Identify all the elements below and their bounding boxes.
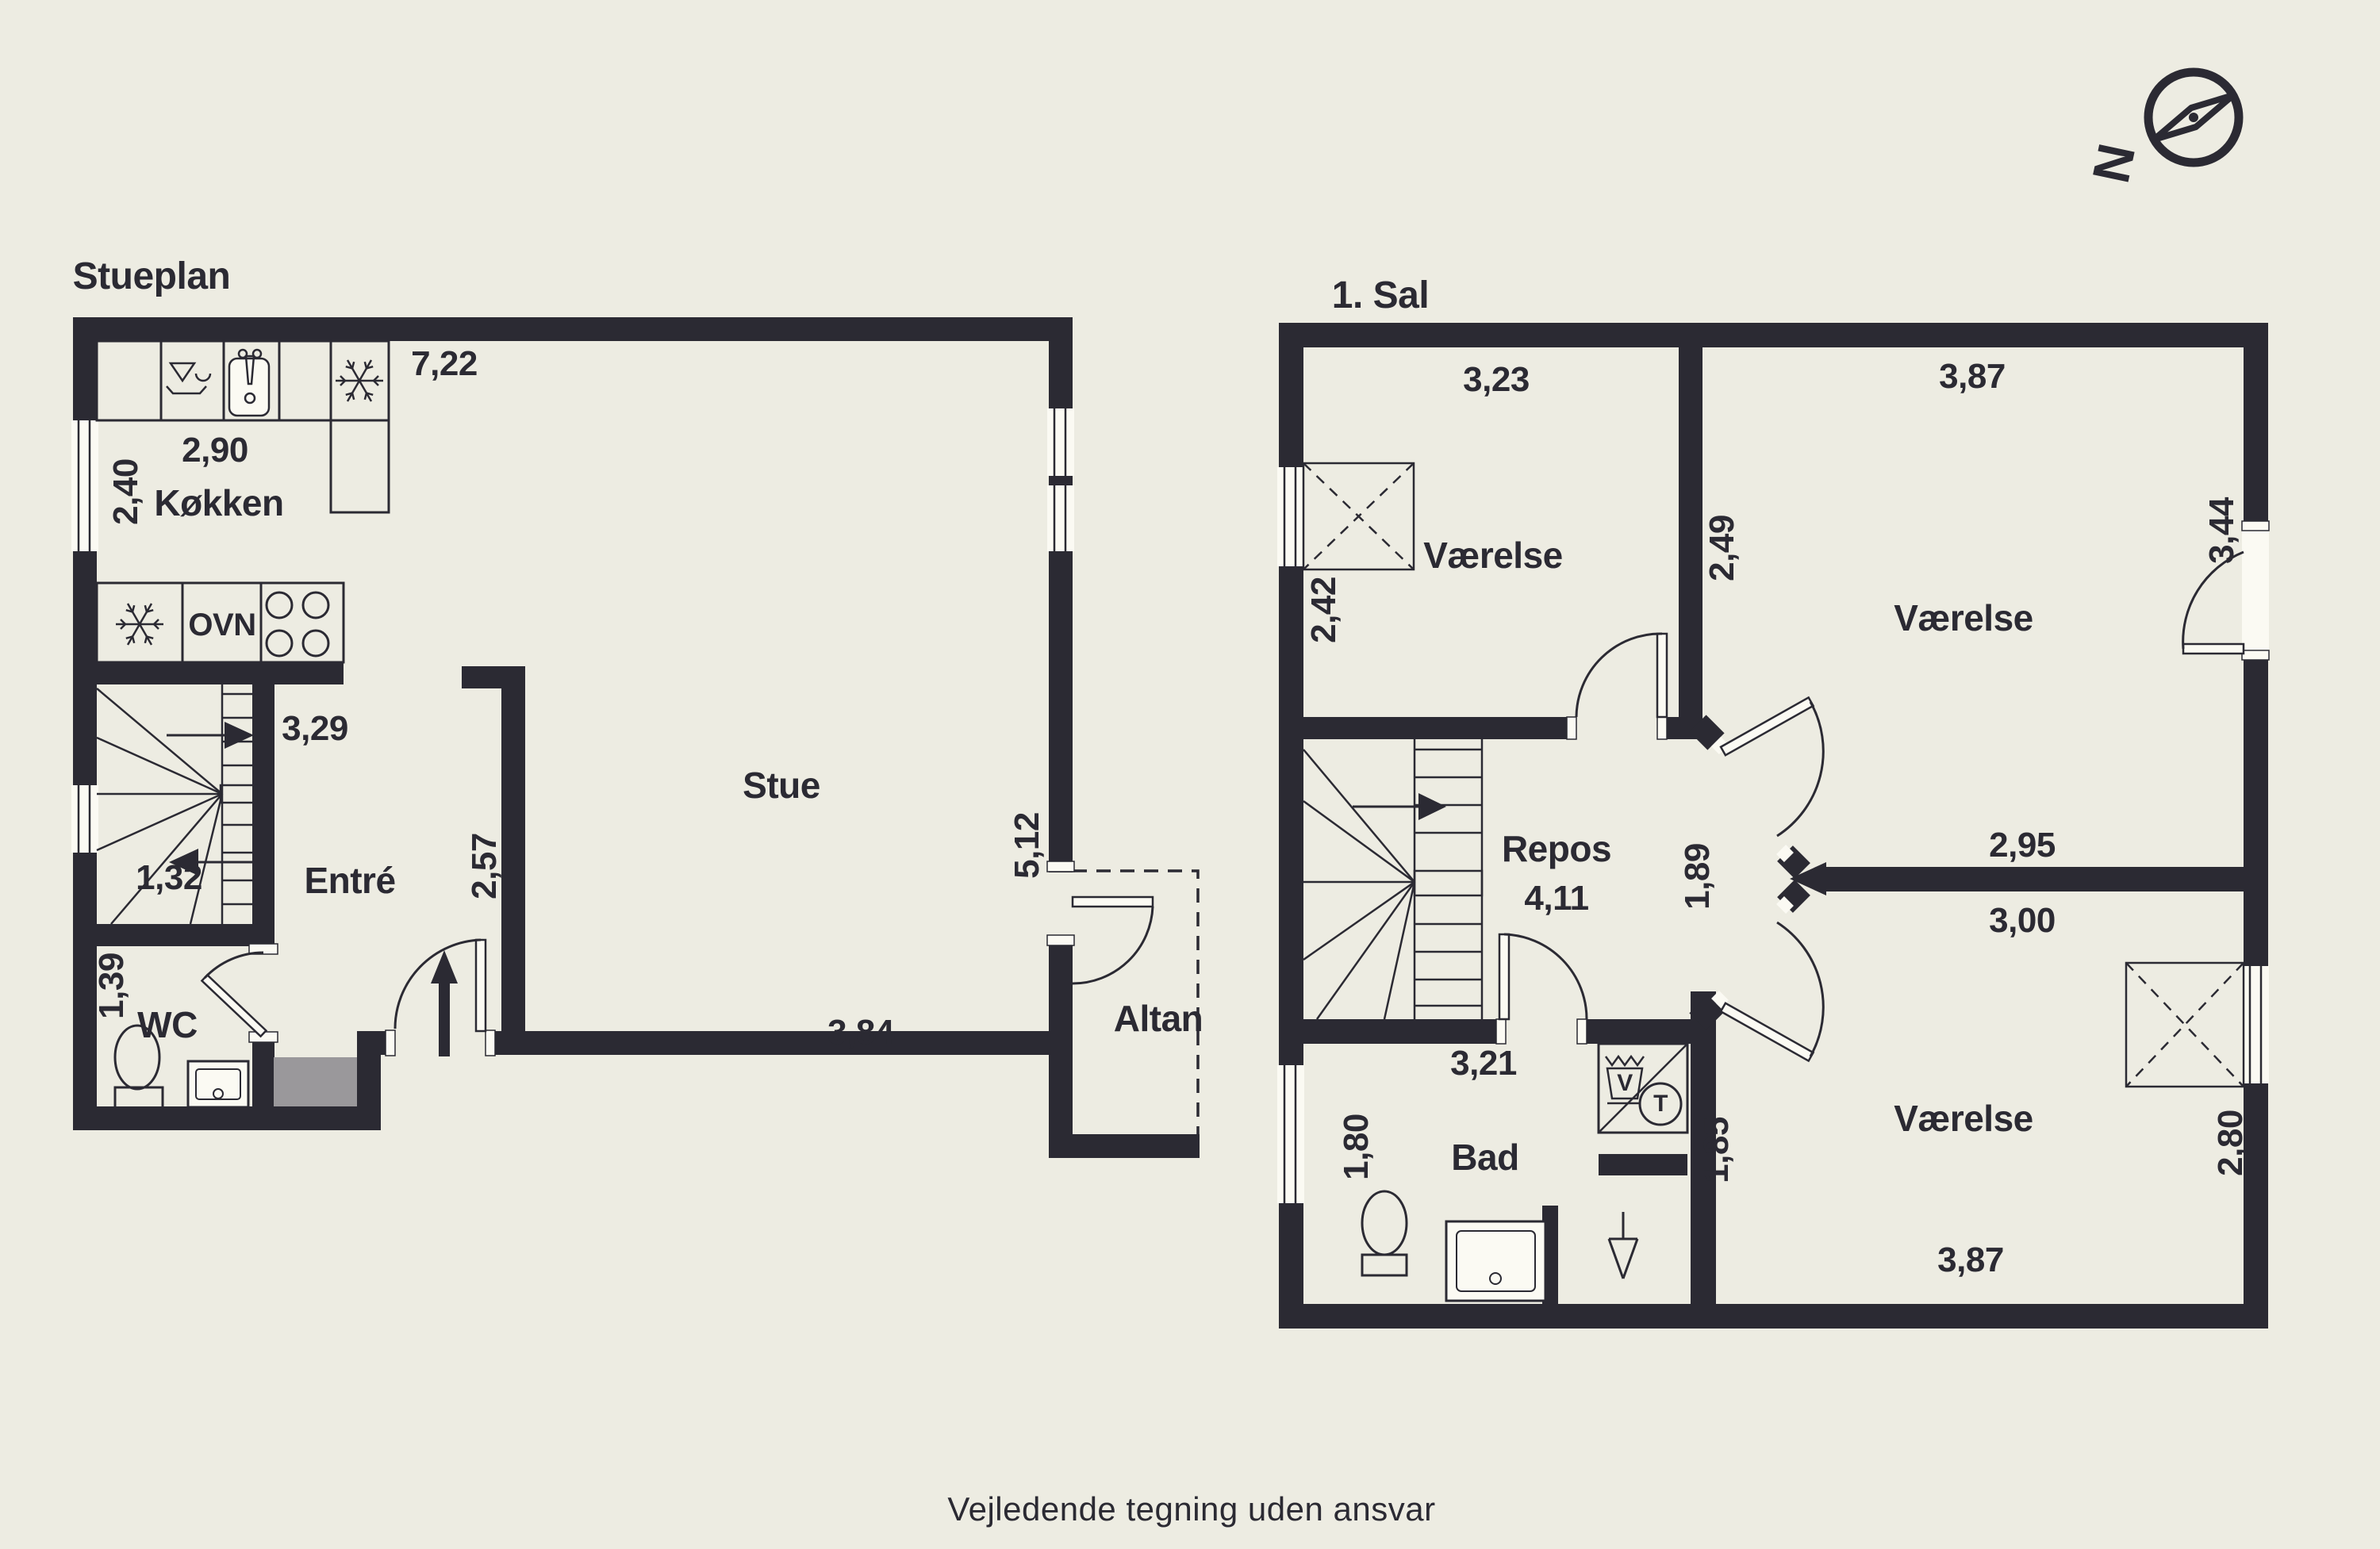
stairs-first: [1303, 739, 1482, 1019]
wardrobe-br-icon: [2126, 963, 2244, 1087]
kitchen-sink-icon: [229, 350, 269, 416]
kitchen-window-icon: [71, 420, 98, 551]
dim-2-95: 2,95: [1989, 828, 2056, 863]
dim-1-89: 1,89: [1680, 843, 1715, 910]
dim-2-40: 2,40: [109, 458, 144, 525]
wardrobe-tl-icon: [1303, 463, 1414, 569]
wc-door: [202, 944, 278, 1042]
dim-7-22: 7,22: [411, 347, 478, 381]
dim-2-42: 2,42: [1307, 577, 1342, 643]
dim-3-44: 3,44: [2205, 497, 2240, 564]
freezer-icon: [116, 601, 163, 647]
dim-5-12: 5,12: [1010, 812, 1045, 879]
dim-1-32: 1,32: [136, 861, 202, 895]
dim-2-57: 2,57: [467, 833, 502, 899]
vaerelse-tl-window-icon: [1277, 467, 1304, 566]
fridge-icon: [336, 358, 383, 404]
shower-icon: [1446, 1221, 1545, 1301]
stove-icon: [267, 592, 328, 656]
dim-2-80: 2,80: [2213, 1110, 2248, 1176]
stue-window-upper-icon: [1047, 408, 1074, 476]
dim-2-90: 2,90: [182, 433, 248, 468]
stair-window-icon: [71, 785, 98, 853]
dim-3-23: 3,23: [1463, 362, 1530, 397]
room-stue: Stue: [743, 767, 820, 803]
entrance-arrow-icon: [431, 950, 458, 1056]
room-entre: Entré: [304, 862, 395, 899]
bad-door: [1496, 934, 1587, 1044]
room-vaerelse-br: Værelse: [1894, 1100, 2033, 1137]
stueplan-title: Stueplan: [73, 258, 231, 296]
stair-up-arrow-icon: [1353, 793, 1446, 820]
wc-sink-icon: [188, 1061, 248, 1107]
repos-door-lower: [1721, 922, 1823, 1061]
room-vaerelse-tr: Værelse: [1894, 600, 2033, 636]
compass-needle-icon: [2154, 95, 2233, 140]
room-kokken: Køkken: [154, 485, 283, 521]
repos-door-upper: [1721, 697, 1823, 836]
sal-walls: [1279, 323, 2268, 1329]
dim-3-87-bottom: 3,87: [1937, 1243, 2004, 1278]
sal-title: 1. Sal: [1332, 277, 1429, 315]
dim-1-39: 1,39: [94, 953, 129, 1019]
dryer-label: T: [1653, 1092, 1668, 1116]
floorplan-drawing: [0, 0, 2380, 1549]
dim-3-00: 3,00: [1989, 903, 2056, 938]
vaerelse-br-window-icon: [2242, 966, 2269, 1083]
dim-3-29: 3,29: [282, 711, 348, 746]
compass-icon: [2148, 72, 2239, 163]
floor-drain-icon: [1609, 1212, 1637, 1279]
floorplan-page: Stueplan1. SalVejledende tegning uden an…: [0, 0, 2380, 1549]
stair-up-arrow-icon: [167, 722, 254, 749]
vaerelse-tl-door: [1567, 634, 1667, 739]
room-altan: Altan: [1114, 1000, 1203, 1037]
dim-3-87-top: 3,87: [1939, 359, 2006, 394]
bad-window-icon: [1277, 1065, 1304, 1203]
doormat: [274, 1057, 357, 1106]
footer-disclaimer: Vejledende tegning uden ansvar: [947, 1493, 1435, 1526]
dim-3-84: 3,84: [827, 1015, 894, 1050]
washer-label: V: [1617, 1072, 1633, 1095]
dishrack-icon: [167, 363, 210, 393]
dim-4-11: 4,11: [1524, 881, 1588, 916]
room-bad: Bad: [1451, 1139, 1518, 1175]
dim-3-21: 3,21: [1450, 1046, 1517, 1081]
dim-1-80: 1,80: [1339, 1114, 1374, 1180]
dim-2-49: 2,49: [1705, 515, 1740, 581]
stue-window-lower-icon: [1047, 485, 1074, 551]
sal-windows: [1277, 467, 2269, 1203]
dim-1-85: 1,85: [1699, 1117, 1734, 1183]
bad-toilet-icon: [1362, 1191, 1407, 1275]
sal-plan: [1277, 323, 2269, 1329]
label-ovn: OVN: [188, 609, 255, 641]
room-repos: Repos: [1502, 830, 1611, 867]
altan-door: [1073, 897, 1153, 983]
laundry-closet: [1599, 1044, 1687, 1133]
room-wc: WC: [137, 1006, 198, 1043]
room-vaerelse-tl: Værelse: [1423, 537, 1563, 573]
